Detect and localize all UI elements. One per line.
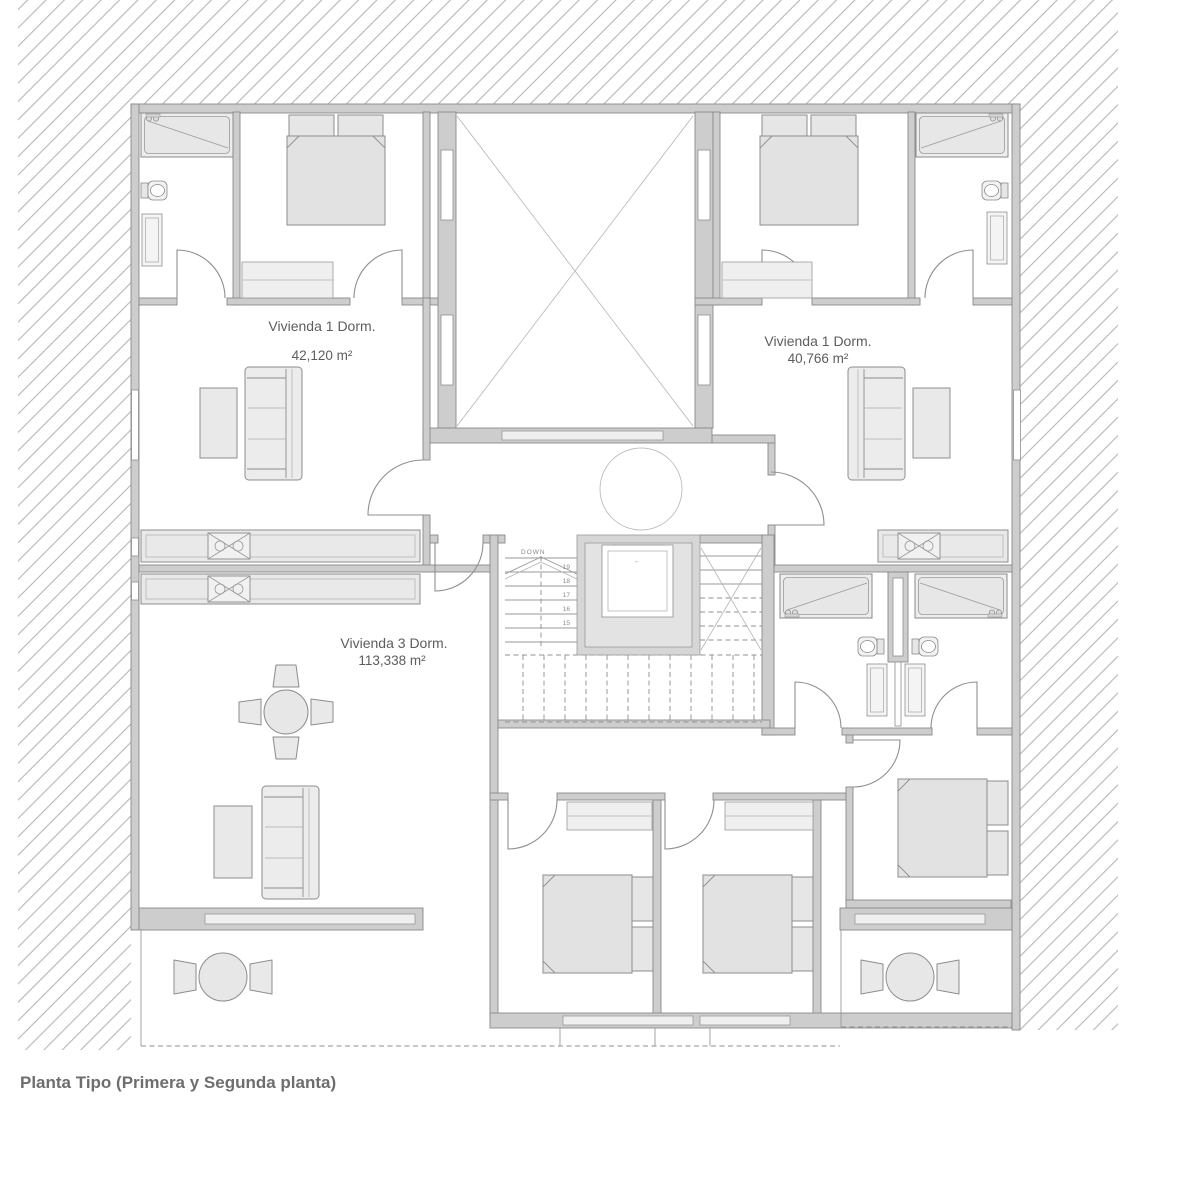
hall-circle (600, 448, 682, 530)
toilet (141, 181, 167, 200)
terrace-window-sill (855, 914, 985, 924)
bedroom-1 (543, 802, 653, 973)
kitchen-counter (141, 530, 420, 562)
toilet (982, 181, 1008, 200)
sink (142, 214, 162, 266)
bathtub (780, 574, 872, 618)
bathroom-mid-right (905, 574, 1007, 716)
door-arc-bathroom-b (931, 682, 977, 728)
duct-right-1 (698, 150, 710, 220)
sink (987, 212, 1007, 264)
bedroom-2 (703, 802, 813, 973)
kitchen-sink (208, 576, 250, 602)
duct-right-2 (698, 315, 710, 385)
kitchen-sink (208, 533, 250, 559)
tread-number: 17 (563, 592, 571, 599)
door-arc-unit-left-entry (368, 460, 423, 515)
duct-left-1 (441, 150, 453, 220)
hatch-top-band (18, 0, 1118, 104)
bathroom-top-right (916, 113, 1008, 264)
window-left-wall (132, 390, 139, 460)
hatch-left-band (18, 104, 131, 1050)
hatch-right-band (1020, 104, 1118, 1030)
dining-table (239, 665, 333, 759)
bathroom-mid-left (780, 574, 887, 716)
unit-left-name: Vivienda 1 Dorm. (268, 318, 375, 334)
elevator-arrow-icon: ← (634, 558, 641, 565)
double-bed (898, 779, 1008, 877)
kitchen-sink (898, 533, 940, 559)
door-arc-bath-left (177, 250, 225, 298)
elevator-car (602, 545, 673, 617)
toilet (858, 637, 884, 656)
floor-plan-drawing: DOWN 19 18 17 16 15 (0, 0, 1200, 1200)
terrace-threshold-1 (563, 1016, 693, 1025)
coffee-table (913, 388, 950, 458)
door-arc-bath-right (925, 250, 973, 298)
unit-left-area: 42,120 m² (292, 348, 353, 363)
double-bed (703, 875, 813, 973)
sink (905, 664, 925, 716)
tread-number: 15 (563, 620, 571, 627)
coffee-table (214, 806, 252, 878)
bathtub (141, 113, 233, 157)
terrace-table (174, 953, 272, 1001)
terrace-right (840, 908, 1012, 1027)
terrace-bottom-strip (490, 1028, 840, 1046)
elevator: ← (577, 535, 700, 655)
bathtub (915, 574, 1007, 618)
patio-shaft (423, 112, 713, 443)
double-bed (287, 115, 385, 225)
patio-lintel (502, 431, 663, 440)
tread-number: 19 (563, 564, 571, 571)
unit-bottom-area: 113,338 m² (358, 653, 426, 668)
stair-flight-down: 19 18 17 16 15 (505, 556, 577, 650)
double-bed (760, 115, 858, 225)
door-arc-unit-right-entry (771, 472, 824, 525)
stairs-down-label: DOWN (521, 549, 546, 556)
bedroom-3 (898, 779, 1008, 877)
window-left-kitchen-2 (132, 582, 139, 600)
sofa (262, 786, 319, 899)
vivienda3-furniture (141, 574, 420, 899)
door-arc-bedroom-2 (665, 800, 714, 849)
terrace-threshold-2 (700, 1016, 790, 1025)
door-arc-bed-left (354, 250, 402, 298)
tread-number: 18 (563, 578, 571, 585)
bath-divider-duct (893, 578, 903, 656)
duct-left-2 (441, 315, 453, 385)
unit-left-furniture (141, 115, 420, 562)
hall-landing (600, 448, 682, 530)
kitchen-counter (878, 530, 1008, 562)
unit-bottom-name: Vivienda 3 Dorm. (340, 635, 447, 651)
window-right-wall (1014, 390, 1021, 460)
bathtub (916, 113, 1008, 157)
kitchen-counter (141, 574, 420, 604)
sofa (848, 367, 905, 480)
terrace-table (861, 953, 959, 1001)
plan-caption: Planta Tipo (Primera y Segunda planta) (20, 1073, 336, 1092)
sink (867, 664, 887, 716)
unit-right-area: 40,766 m² (788, 351, 849, 366)
window-left-kitchen-1 (132, 538, 139, 556)
coffee-table (200, 388, 237, 458)
terrace-left (139, 908, 490, 1046)
stair-flight-up (700, 548, 762, 650)
tread-number: 16 (563, 606, 571, 613)
bath-divider-lower (895, 662, 901, 726)
bathroom-top-left (141, 113, 233, 266)
floor-plan-page: DOWN 19 18 17 16 15 (0, 0, 1200, 1200)
double-bed (543, 875, 653, 973)
door-arc-bedroom-1 (508, 800, 557, 849)
unit-right-name: Vivienda 1 Dorm. (764, 333, 871, 349)
door-arc-bedroom-3 (853, 740, 900, 787)
toilet (912, 637, 938, 656)
sofa (245, 367, 302, 480)
stair-lower-run (505, 655, 762, 722)
door-arc-bathroom-a (795, 682, 841, 728)
terrace-window-sill (205, 914, 415, 924)
